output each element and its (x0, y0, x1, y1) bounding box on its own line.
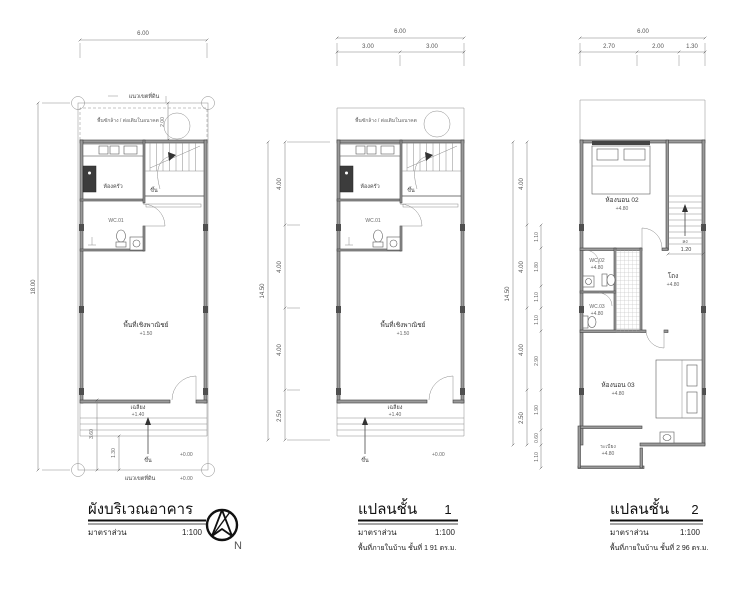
p1-ground-level2: +0.00 (180, 476, 193, 482)
p2-dim-left-a: 4.00 (277, 178, 283, 190)
floor2-area-note: พื้นที่ภายในบ้าน ชั้นที่ 2 96 ตร.ม. (610, 541, 708, 552)
p3-dim-inner-2: 1.10 (534, 292, 540, 302)
p3-wc02-label: WC.02 (589, 258, 605, 264)
floor1-number: 1 (444, 502, 451, 517)
p3-dim-inner-4: 2.90 (534, 356, 540, 366)
p3-dim-top: 6.00 (637, 29, 649, 35)
p3-scale-value: 1:100 (680, 528, 701, 537)
p3-bedroom3-level: +4.80 (612, 391, 625, 397)
p1-boundary-label-top: แนวเขตที่ดิน (129, 92, 160, 100)
p2-dim-left-c: 4.00 (277, 344, 283, 356)
p3-dim-stair: 1.20 (681, 247, 692, 253)
floor1-plan-drawing: 6.00 3.00 3.00 14.50 4.00 4.00 4.00 2.50… (260, 29, 465, 552)
p3-dim-inner-5: 1.90 (534, 405, 540, 415)
p3-dim-top-b: 2.00 (652, 44, 664, 50)
p2-stairs-up-label: ขึ้น (407, 186, 415, 194)
p1-dim-top: 6.00 (137, 31, 149, 37)
p1-porch-label: เฉลียง (131, 404, 146, 411)
p3-scale-label: มาตราส่วน (610, 528, 649, 537)
p2-dim-top-a: 3.00 (362, 44, 374, 50)
p2-commercial-level: +1.50 (397, 331, 410, 337)
drawing-sheet: 6.00 18.00 แนวเขตที่ดิน แนวเขตที่ดิน พื้… (0, 0, 750, 611)
floor1-title: แปลนชั้น (358, 498, 417, 518)
p3-dim-top-c: 1.30 (686, 44, 698, 50)
p3-dim-left-a: 4.00 (519, 178, 525, 190)
p3-dim-top-a: 2.70 (603, 44, 615, 50)
north-letter: N (234, 540, 242, 552)
p3-dim-left-total: 14.50 (505, 286, 511, 302)
p1-porch-level: +1.40 (132, 412, 145, 418)
p2-scale-value: 1:100 (435, 528, 456, 537)
p3-hall-label: โถง (668, 272, 679, 280)
p2-entry-up-label: ขึ้น (361, 456, 369, 464)
p2-porch-level: +1.40 (389, 412, 402, 418)
p1-entry-up-label: ขึ้น (144, 456, 152, 464)
p2-wc01-label: WC.01 (365, 218, 381, 224)
p1-boundary-label-bottom: แนวเขตที่ดิน (125, 474, 156, 482)
p2-kitchen-label: ห้องครัว (360, 183, 379, 190)
p1-dim-wash: 2.00 (160, 117, 166, 127)
p1-ground-level: +0.00 (180, 452, 193, 458)
p2-commercial-label: พื้นที่เชิงพาณิชย์ (380, 320, 425, 329)
p3-bedroom2-level: +4.80 (616, 206, 629, 212)
p3-dim-inner-1: 1.80 (534, 262, 540, 272)
p1-dim-left: 18.00 (31, 279, 37, 295)
p2-dim-left-total: 14.50 (260, 283, 266, 299)
p1-scale-value: 1:100 (182, 528, 203, 537)
p3-dim-left-b: 4.00 (519, 261, 525, 273)
floor1-area-note: พื้นที่ภายในบ้าน ชั้นที่ 1 91 ตร.ม. (358, 541, 456, 552)
p1-scale-label: มาตราส่วน (88, 528, 127, 537)
p3-balcony-label: ระเบียง (600, 443, 616, 450)
p1-stairs-up-label: ขึ้น (150, 186, 158, 194)
north-arrow-icon: N (207, 510, 242, 552)
p3-wc03-level: +4.80 (591, 311, 604, 317)
p1-stairs (145, 143, 204, 171)
p1-kitchen-label: ห้องครัว (103, 183, 122, 190)
p3-dim-inner-3: 1.10 (534, 315, 540, 325)
floor2-number: 2 (691, 502, 698, 517)
p2-dim-left-b: 4.00 (277, 261, 283, 273)
floor2-plan-drawing: 6.00 2.70 2.00 1.30 14.50 4.00 4.00 4.00… (505, 29, 708, 552)
p3-wc02-level: +4.80 (591, 265, 604, 271)
p1-wc01-label: WC.01 (108, 218, 124, 224)
p2-scale-label: มาตราส่วน (358, 528, 397, 537)
floor2-title: แปลนชั้น (610, 498, 669, 518)
p1-dim-step: 1.30 (111, 448, 117, 458)
p1-commercial-level: +1.50 (140, 331, 153, 337)
p2-wash-label: พื้นซักล้าง / ต่อเติมในอนาคต (355, 115, 417, 124)
p3-balcony-level: +4.80 (602, 451, 615, 457)
p3-dim-left-c: 4.00 (519, 344, 525, 356)
p1-commercial-label: พื้นที่เชิงพาณิชย์ (123, 320, 168, 329)
p3-hall-level: +4.80 (667, 282, 680, 288)
p2-dim-top-b: 3.00 (426, 44, 438, 50)
p3-dim-left-d: 2.50 (519, 412, 525, 424)
p3-dim-inner-6: 0.60 (534, 433, 540, 443)
p2-dim-left-d: 2.50 (277, 410, 283, 422)
p3-bedroom3-label: ห้องนอน 03 (601, 381, 635, 389)
p3-dim-inner-7: 1.10 (534, 452, 540, 462)
p1-dim-porch: 3.60 (89, 429, 95, 439)
p2-porch-label: เฉลียง (388, 404, 403, 411)
p3-stairs-down-label: ลง (682, 239, 688, 245)
p3-bedroom2-label: ห้องนอน 02 (605, 196, 639, 204)
p1-wash-label: พื้นซักล้าง / ต่อเติมในอนาคต (97, 115, 159, 124)
site-plan-title: ผังบริเวณอาคาร (88, 501, 193, 518)
floor-plan-canvas: 6.00 18.00 แนวเขตที่ดิน แนวเขตที่ดิน พื้… (0, 0, 750, 611)
p2-stairs (402, 143, 461, 171)
p2-ground-level: +0.00 (432, 452, 445, 458)
p3-dim-inner-0: 1.10 (534, 232, 540, 242)
p3-wc03-label: WC.03 (589, 304, 605, 310)
site-plan-drawing: 6.00 18.00 แนวเขตที่ดิน แนวเขตที่ดิน พื้… (31, 31, 242, 552)
p2-dim-top: 6.00 (394, 29, 406, 35)
